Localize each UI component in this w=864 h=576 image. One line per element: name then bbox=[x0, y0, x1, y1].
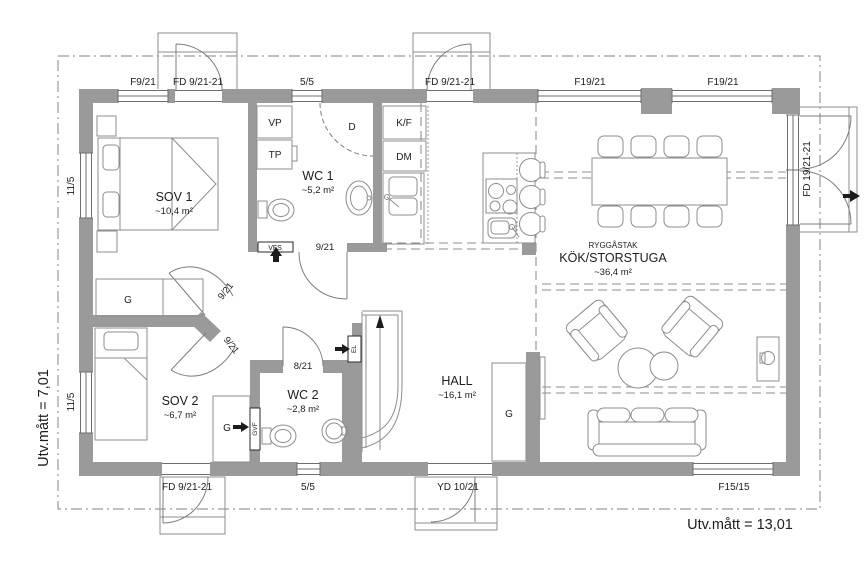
label-door-wc1: 9/21 bbox=[316, 242, 335, 253]
armchair bbox=[564, 298, 630, 364]
label-door-wc2: 8/21 bbox=[294, 361, 313, 372]
window-55-bottom bbox=[297, 462, 320, 476]
floor-plan-page: F9/21 FD 9/21-21 5/5 FD 9/21-21 F19/21 F… bbox=[0, 0, 864, 576]
label-door-fd-top-left: FD 9/21-21 bbox=[173, 77, 223, 88]
label-door-fd-right: FD 19/21-21 bbox=[802, 141, 813, 197]
room-area-wc1: ~5,2 m² bbox=[302, 185, 334, 196]
label-g-sov1: G bbox=[124, 295, 132, 306]
bar-stools bbox=[520, 159, 546, 236]
label-window-55-top: 5/5 bbox=[300, 77, 314, 88]
label-window-f1921-right: F19/21 bbox=[707, 77, 739, 88]
label-vfs: VFS bbox=[268, 245, 282, 252]
label-door-fd-bottom: FD 9/21-21 bbox=[162, 482, 212, 493]
side-table bbox=[650, 352, 678, 380]
floor-plan-drawing: F9/21 FD 9/21-21 5/5 FD 9/21-21 F19/21 F… bbox=[0, 0, 864, 576]
label-window-f921: F9/21 bbox=[130, 77, 156, 88]
room-name-kok: KÖK/STORSTUGA bbox=[559, 251, 667, 265]
nightstand bbox=[97, 231, 117, 252]
room-name-hall: HALL bbox=[441, 374, 472, 388]
room-name-wc1: WC 1 bbox=[302, 169, 333, 183]
window-55-top bbox=[292, 89, 322, 103]
window-115-lower bbox=[79, 372, 93, 433]
label-door-fd-top-mid: FD 9/21-21 bbox=[425, 77, 475, 88]
room-note-kok: RYGGÅSTAK bbox=[588, 241, 638, 250]
label-dishwasher: DM bbox=[396, 152, 412, 163]
sink-basin bbox=[389, 177, 417, 196]
window-pier bbox=[641, 88, 672, 114]
pillow bbox=[104, 332, 138, 350]
room-area-sov1: ~10,4 m² bbox=[155, 206, 193, 217]
label-fridge: K/F bbox=[396, 118, 412, 129]
label-g-hall: G bbox=[505, 409, 513, 420]
island-post bbox=[522, 242, 536, 255]
room-area-wc2: ~2,8 m² bbox=[287, 404, 319, 415]
room-area-kok: ~36,4 m² bbox=[594, 267, 632, 278]
door-fd-top-mid bbox=[427, 44, 473, 103]
shower-outline bbox=[320, 103, 373, 156]
room-name-sov1: SOV 1 bbox=[156, 190, 193, 204]
lounge bbox=[540, 294, 779, 456]
room-name-sov2: SOV 2 bbox=[162, 394, 199, 408]
kitchen-island bbox=[483, 153, 545, 243]
room-area-hall: ~16,1 m² bbox=[438, 390, 476, 401]
stair-up-arrow bbox=[376, 315, 384, 328]
window-f1515 bbox=[693, 462, 773, 476]
label-window-55-bottom: 5/5 bbox=[301, 482, 315, 493]
corner-pier bbox=[772, 88, 800, 114]
label-door-sov1: 9/21 bbox=[216, 281, 236, 302]
label-g-sov2: G bbox=[223, 423, 231, 434]
toilet-tank bbox=[258, 201, 267, 218]
dining-table bbox=[592, 158, 727, 205]
label-window-f1921-left: F19/21 bbox=[574, 77, 606, 88]
toilet-bowl bbox=[268, 199, 294, 221]
interior-doors bbox=[169, 252, 347, 376]
label-window-f1515: F15/15 bbox=[718, 482, 750, 493]
door-fd-top-left bbox=[175, 44, 222, 103]
label-tp: TP bbox=[269, 150, 282, 161]
label-shower: D bbox=[348, 122, 355, 133]
label-el: EL bbox=[351, 345, 358, 353]
pillow bbox=[103, 145, 119, 170]
window-f1921-right bbox=[672, 89, 772, 103]
sink-basin bbox=[389, 198, 417, 215]
armchair bbox=[659, 294, 725, 360]
room-area-sov2: ~6,7 m² bbox=[164, 410, 196, 421]
label-window-115-lower: 11/5 bbox=[66, 392, 77, 411]
room-name-wc2: WC 2 bbox=[287, 388, 318, 402]
label-gvf: GVF bbox=[252, 422, 259, 435]
dimension-left: Utv.mått = 7,01 bbox=[36, 369, 52, 467]
window-f1921-left bbox=[538, 89, 641, 103]
wc2-fixtures bbox=[262, 419, 348, 447]
dimension-bottom: Utv.mått = 13,01 bbox=[687, 517, 793, 533]
nightstand bbox=[97, 116, 116, 136]
window-115-upper bbox=[79, 153, 93, 218]
pillow bbox=[103, 192, 119, 217]
sofa bbox=[588, 408, 706, 456]
label-door-yd: YD 10/21 bbox=[437, 482, 479, 493]
label-door-sov2: 9/21 bbox=[221, 335, 241, 356]
window-f921 bbox=[118, 89, 168, 103]
door-wc1 bbox=[299, 252, 347, 299]
fireplace-stove bbox=[757, 337, 779, 381]
faucet bbox=[367, 196, 371, 200]
toilet-bowl bbox=[270, 425, 296, 447]
label-vp: VP bbox=[268, 118, 282, 129]
label-window-115-upper: 11/5 bbox=[66, 176, 77, 195]
hall-storstuga-wall bbox=[526, 352, 540, 462]
gvf-arrow bbox=[233, 422, 249, 432]
wardrobe-sov1 bbox=[96, 279, 203, 316]
wall-shelf bbox=[540, 357, 545, 419]
dining-set bbox=[592, 136, 727, 227]
